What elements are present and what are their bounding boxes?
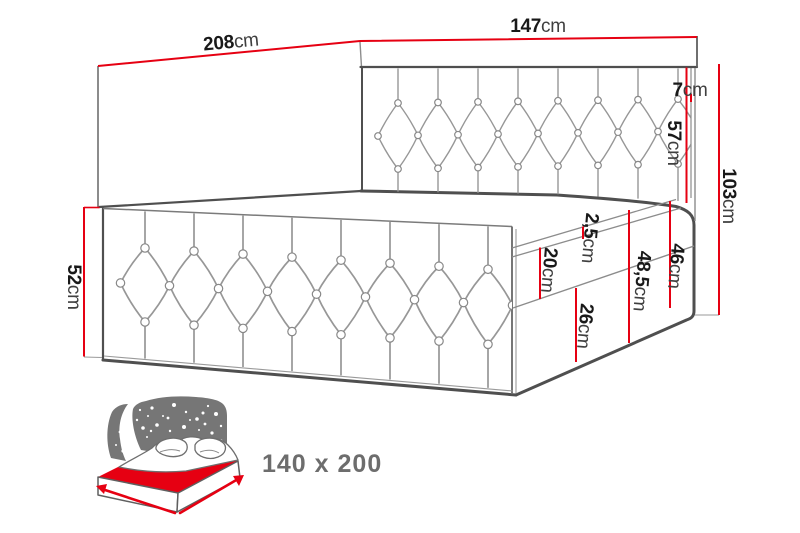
tuft-line: [418, 102, 438, 135]
mattress-near-edge: [99, 191, 361, 207]
bed-dimension-diagram: 208cm 147cm 7cm 57cm 103cm 52cm 2,5cm 20…: [0, 0, 800, 533]
tufting-button: [165, 282, 173, 290]
star-dot: [172, 403, 176, 407]
tuft-line: [518, 101, 538, 133]
star-dot: [210, 431, 213, 434]
dim-label-box-height: 46cm: [662, 242, 688, 289]
star-dot: [136, 419, 138, 421]
icon-pillow-left: [156, 438, 187, 456]
tufting-button: [595, 162, 602, 169]
tufting-button: [455, 131, 462, 138]
star-dot: [141, 426, 145, 430]
headboard-tufting: [375, 69, 702, 201]
tufting-button: [141, 318, 149, 326]
icon-pillow-right: [195, 438, 225, 458]
dim-label-headboard-width: 147cm: [510, 16, 566, 38]
tuft-line: [398, 103, 418, 135]
tuft-line: [268, 291, 293, 331]
tuft-line: [464, 303, 489, 345]
dim-label-front-panel-height: 52cm: [62, 264, 84, 309]
tufting-button: [435, 165, 442, 172]
tufting-button: [535, 130, 542, 137]
tuft-line: [618, 132, 638, 165]
tufting-button: [395, 100, 402, 107]
tufting-button: [190, 321, 198, 329]
tufting-button: [116, 279, 124, 287]
tuft-line: [317, 294, 342, 335]
tufting-button: [484, 340, 492, 348]
tuft-line: [478, 102, 498, 134]
tuft-line: [219, 289, 244, 329]
tuft-line: [498, 101, 518, 134]
front-panel-tufting: [116, 211, 516, 388]
tufting-button: [635, 96, 642, 103]
star-dot: [146, 436, 148, 438]
star-dot: [119, 431, 122, 434]
tuft-line: [378, 136, 398, 169]
star-dot: [202, 412, 205, 415]
tuft-line: [268, 257, 293, 291]
tuft-line: [458, 102, 478, 135]
tuft-line: [170, 251, 195, 286]
tuft-line: [488, 269, 513, 305]
star-dot: [115, 444, 117, 446]
tuft-line: [219, 254, 244, 288]
tuft-line: [390, 300, 415, 338]
tuft-line: [121, 248, 146, 283]
tufting-button: [141, 244, 149, 252]
tufting-button: [386, 259, 394, 267]
star-dot: [185, 411, 187, 413]
star-dot: [167, 417, 170, 420]
tufting-button: [239, 324, 247, 332]
star-dot: [134, 440, 136, 442]
star-dot: [169, 430, 171, 432]
tuft-line: [170, 286, 195, 325]
tuft-line: [317, 260, 342, 294]
star-dot: [150, 430, 152, 432]
tufting-button: [615, 129, 622, 136]
tuft-line: [292, 257, 317, 294]
tufting-button: [337, 331, 345, 339]
tuft-line: [538, 133, 558, 166]
star-dot: [198, 429, 200, 431]
star-dot: [139, 409, 141, 411]
star-dot: [195, 417, 199, 421]
tuft-line: [598, 100, 618, 132]
bed-size-icon: [96, 396, 244, 513]
panel-height-connector-bottom: [84, 357, 102, 358]
tufting-button: [435, 99, 442, 106]
tufting-button: [288, 327, 296, 335]
tuft-line: [415, 266, 440, 300]
tuft-line: [488, 305, 513, 344]
star-dot: [147, 415, 149, 417]
tuft-line: [638, 132, 658, 165]
star-dot: [150, 406, 153, 409]
tuft-line: [243, 291, 268, 328]
tufting-button: [361, 293, 369, 301]
front-panel-top-seam: [103, 209, 512, 227]
tufting-button: [435, 337, 443, 345]
tuft-line: [498, 134, 518, 167]
tufting-button: [312, 290, 320, 298]
tufting-button: [495, 131, 502, 138]
tufting-button: [655, 128, 662, 135]
tufting-button: [410, 296, 418, 304]
dim-line-208-147: [98, 37, 697, 66]
tuft-line: [194, 289, 219, 326]
tuft-line: [145, 286, 170, 322]
tuft-line: [292, 294, 317, 331]
tuft-line: [618, 100, 638, 133]
tufting-button: [435, 262, 443, 270]
star-dot: [207, 405, 209, 407]
tuft-line: [439, 266, 464, 302]
star-dot: [189, 419, 191, 421]
tuft-line: [578, 133, 598, 166]
tuft-line: [439, 303, 464, 342]
tuft-line: [194, 251, 219, 289]
tuft-line: [438, 135, 458, 169]
star-dot: [121, 449, 124, 452]
tuft-line: [464, 269, 489, 302]
tufting-button: [595, 97, 602, 104]
tufting-button: [288, 253, 296, 261]
dim-label-upper-section: 20cm: [535, 246, 561, 293]
tufting-button: [515, 98, 522, 105]
star-dot: [220, 425, 222, 427]
tuft-line: [366, 263, 391, 297]
bed-outline: [84, 36, 719, 395]
front-panel-bottom-seam: [104, 356, 513, 391]
tufting-button: [375, 133, 382, 140]
tuft-line: [398, 135, 418, 169]
icon-headboard-wing: [107, 404, 128, 461]
star-dot: [162, 415, 164, 417]
tuft-line: [366, 297, 391, 338]
tufting-button: [459, 298, 467, 306]
tuft-line: [415, 300, 440, 341]
dim-label-headboard-front-height: 57cm: [662, 120, 684, 165]
tuft-line: [478, 134, 498, 167]
tuft-line: [390, 263, 415, 300]
headboard-topface-left-edge: [360, 42, 362, 67]
tuft-line: [243, 254, 268, 291]
tufting-button: [190, 247, 198, 255]
tufting-button: [635, 161, 642, 168]
tufting-button: [575, 130, 582, 137]
tuft-line: [418, 135, 438, 168]
tufting-button: [415, 132, 422, 139]
tuft-line: [538, 101, 558, 134]
tuft-line: [598, 132, 618, 165]
tuft-line: [518, 133, 538, 166]
tufting-button: [263, 287, 271, 295]
tuft-line: [638, 100, 658, 132]
size-badge: 140 x 200: [262, 450, 382, 479]
front-panel-bottom-edge: [103, 360, 516, 395]
tuft-line: [438, 102, 458, 134]
tuft-line: [558, 101, 578, 133]
dim-label-lower-section: 26cm: [571, 302, 597, 349]
tufting-button: [386, 334, 394, 342]
tuft-line: [145, 248, 170, 286]
tufting-button: [555, 163, 562, 170]
tufting-button: [395, 166, 402, 173]
tufting-button: [239, 250, 247, 258]
tuft-line: [558, 133, 578, 166]
tufting-button: [515, 164, 522, 171]
tufting-button: [475, 99, 482, 106]
dim-label-mattress-lip: 2,5cm: [576, 212, 602, 264]
tuft-line: [458, 135, 478, 168]
dim-label-total-height: 103cm: [717, 168, 739, 224]
tuft-line: [378, 103, 398, 136]
tuft-line: [341, 297, 366, 335]
tufting-button: [475, 164, 482, 171]
tuft-line: [341, 260, 366, 297]
tufting-button: [337, 256, 345, 264]
tufting-button: [555, 97, 562, 104]
star-dot: [155, 423, 159, 427]
star-dot: [204, 423, 207, 426]
star-dot: [182, 425, 186, 429]
dim-label-headboard-top: 7cm: [672, 80, 707, 102]
star-dot: [214, 412, 218, 416]
tufting-button: [484, 265, 492, 273]
tuft-line: [121, 283, 146, 322]
tuft-line: [578, 100, 598, 133]
tufting-button: [214, 284, 222, 292]
